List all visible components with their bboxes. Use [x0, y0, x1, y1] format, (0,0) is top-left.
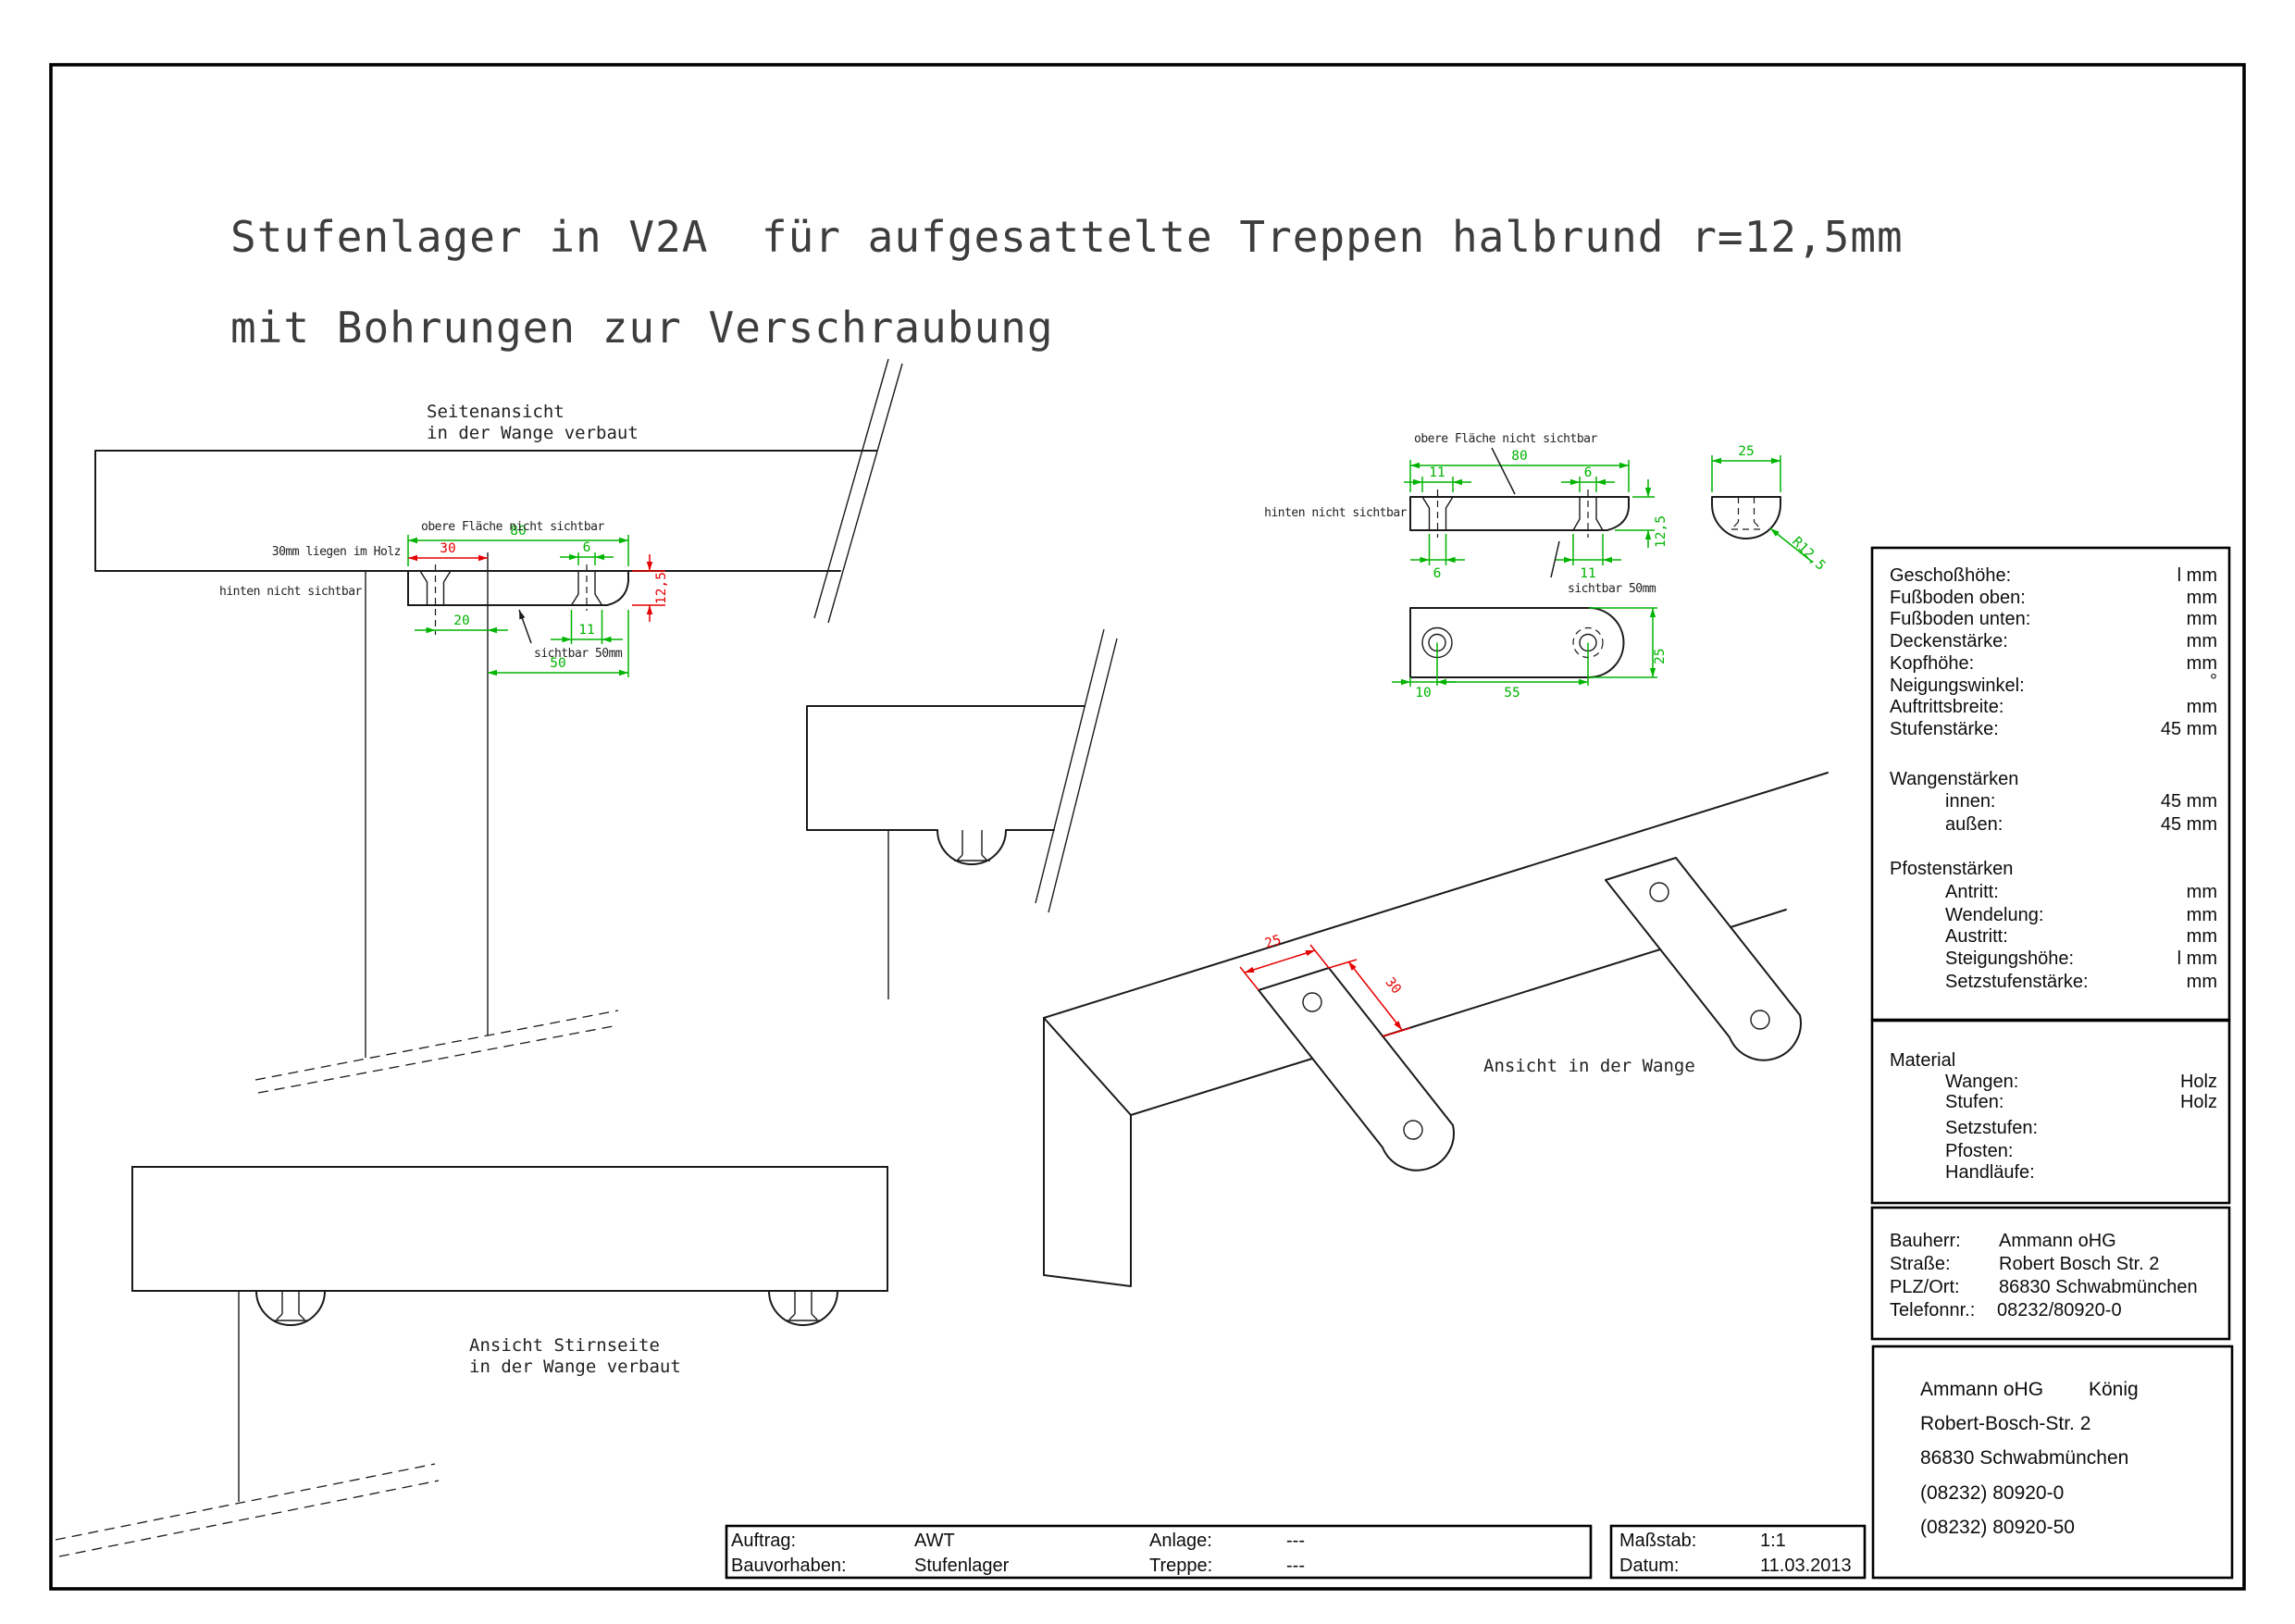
cad-canvas: Stufenlager in V2A für aufgesattelte Tre… [0, 0, 2295, 1624]
spec-panel: Geschoßhöhe:l mm Fußboden oben:mm Fußbod… [1872, 548, 2229, 1020]
spec-value: l mm [2177, 948, 2217, 969]
screw-profile-right [787, 1291, 820, 1320]
spec-label: Auftrittsbreite: [1890, 697, 2003, 717]
plate-end-outline [1712, 497, 1780, 539]
drawing-title-line1: Stufenlager in V2A für aufgesattelte Tre… [230, 212, 1904, 262]
bracket-2-hole-1 [1650, 883, 1669, 901]
bauherr-value: Robert Bosch Str. 2 [1999, 1254, 2159, 1274]
bracket-1-hole-2 [1404, 1121, 1422, 1139]
iso-dim-30: 30 [1329, 960, 1410, 1036]
spec-value: 45 mm [2161, 791, 2217, 812]
spec-value: mm [2187, 697, 2217, 717]
massstab-value: 1:1 [1760, 1531, 1786, 1551]
middle-section-view [807, 629, 1117, 999]
drawing-sheet: Stufenlager in V2A für aufgesattelte Tre… [0, 0, 2295, 1624]
dim-label-6: 6 [583, 540, 591, 555]
dim-12-5: 12,5 [632, 554, 669, 622]
dim-label-11-bottom: 11 [1580, 566, 1595, 581]
spec-value: mm [2187, 609, 2217, 629]
bauherr-label: Bauherr: [1890, 1231, 1961, 1251]
dim-label-20: 20 [453, 614, 469, 628]
board-left-end [1044, 1018, 1131, 1286]
break-lines-bottom [255, 1010, 618, 1093]
company-street: Robert-Bosch-Str. 2 [1920, 1413, 2090, 1434]
drawing-title-line2: mit Bohrungen zur Verschraubung [230, 303, 1054, 353]
spec-label: innen: [1945, 791, 1996, 812]
dim-11: 11 [551, 610, 623, 644]
note-sichtbar-50mm: sichtbar 50mm [1568, 582, 1656, 596]
auftrag-label: Auftrag: [731, 1531, 796, 1551]
pfosten-header: Pfostenstärken [1890, 859, 2013, 879]
spec-label: Deckenstärke: [1890, 631, 2008, 651]
bauvorhaben-label: Bauvorhaben: [731, 1556, 847, 1576]
screw-profile-left [274, 1291, 307, 1320]
step-front-outline [132, 1167, 887, 1291]
massstab-label: Maßstab: [1619, 1531, 1696, 1551]
spec-label: Geschoßhöhe: [1890, 565, 2011, 586]
material-value: Holz [2180, 1092, 2217, 1112]
bracket-1-hole-1 [1303, 993, 1321, 1011]
dim-label-6-top: 6 [1584, 465, 1593, 480]
dim-11-top: 11 [1404, 465, 1471, 492]
board-front-edge [1131, 910, 1786, 1115]
spec-value: mm [2187, 905, 2217, 925]
spec-label: Neigungswinkel: [1890, 676, 2025, 696]
side-view: 80 30 6 12,5 20 11 [95, 359, 902, 1093]
spec-value: mm [2187, 631, 2217, 651]
radius-callout: R12,5 [1770, 528, 1828, 574]
anlage-label: Anlage: [1149, 1531, 1212, 1551]
material-label: Stufen: [1945, 1092, 2003, 1112]
countersink-notches [1422, 497, 1603, 530]
wangen-header: Wangenstärken [1890, 769, 2018, 789]
wange-board-outline [95, 451, 876, 571]
detail-views: 80 11 6 12,5 6 [1264, 432, 1828, 700]
dim-50: 50 [488, 610, 628, 677]
plate-plan-outline [1410, 608, 1624, 677]
company-city: 86830 Schwabmünchen [1920, 1447, 2128, 1469]
break-lines-top [814, 359, 902, 623]
iso-dim-label-25: 25 [1263, 933, 1283, 952]
spec-label: Stufenstärke: [1890, 719, 1999, 739]
dim-label-25-plan: 25 [1653, 649, 1668, 664]
material-panel: Material Wangen:Holz Stufen:Holz Setzstu… [1872, 1021, 2229, 1203]
dim-label-6-bottom: 6 [1433, 566, 1442, 581]
spec-label: Antritt: [1945, 882, 1999, 902]
front-view-title-2: in der Wange verbaut [469, 1357, 681, 1377]
dim-25-end: 25 [1712, 444, 1780, 492]
spec-label: Steigungshöhe: [1945, 948, 2074, 969]
spec-value: mm [2187, 926, 2217, 947]
dim-label-80: 80 [1511, 449, 1527, 464]
spec-label: Setzstufenstärke: [1945, 972, 2089, 992]
step-section-outline [807, 706, 1085, 830]
dim-20: 20 [415, 614, 508, 630]
bracket-1-outline [1259, 968, 1454, 1171]
datum-label: Datum: [1619, 1556, 1679, 1576]
note-sichtbar-50mm: sichtbar 50mm [534, 647, 623, 661]
countersink-notches [420, 571, 602, 605]
bearing-end-arcs [256, 1291, 837, 1325]
company-phone-2: (08232) 80920-50 [1920, 1517, 2075, 1538]
footer-table: Auftrag: AWT Anlage: --- Bauvorhaben: St… [726, 1526, 1865, 1578]
bearing-end-arc [937, 830, 1006, 864]
dim-30: 30 [408, 541, 488, 558]
spec-value: mm [2187, 588, 2217, 608]
iso-dim-label-30: 30 [1382, 975, 1403, 998]
side-view-title-1: Seitenansicht [427, 402, 564, 422]
dim-6: 6 [560, 540, 614, 565]
bauherr-label: Straße: [1890, 1254, 1951, 1274]
spec-label: Austritt: [1945, 926, 2008, 947]
note-30mm-holz: 30mm liegen im Holz [272, 545, 401, 559]
dim-label-25-end: 25 [1738, 444, 1754, 459]
spec-value: 45 mm [2161, 814, 2217, 835]
bauvorhaben-value: Stufenlager [914, 1556, 1010, 1576]
treppe-value: --- [1286, 1556, 1305, 1576]
break-lines [56, 1464, 439, 1556]
dim-11-bottom: 11 [1555, 534, 1621, 581]
anlage-value: --- [1286, 1531, 1305, 1551]
iso-view-title: Ansicht in der Wange [1483, 1056, 1695, 1076]
spec-label: Fußboden oben: [1890, 588, 2026, 608]
material-header: Material [1890, 1050, 1955, 1071]
dim-label-30: 30 [440, 541, 455, 556]
company-name: Ammann oHG [1920, 1379, 2043, 1400]
note-obere-flaeche: obere Fläche nicht sichtbar [421, 520, 604, 534]
datum-value: 11.03.2013 [1760, 1556, 1852, 1576]
dim-12-5: 12,5 [1615, 479, 1669, 548]
dim-label-11-top: 11 [1429, 465, 1445, 480]
dim-25-plan: 25 [1589, 608, 1668, 677]
note-hinten: hinten nicht sichtbar [1264, 506, 1408, 520]
dim-label-10: 10 [1415, 686, 1431, 700]
company-phone-1: (08232) 80920-0 [1920, 1482, 2064, 1504]
bracket-2-hole-2 [1751, 1010, 1769, 1029]
dim-6-bottom: 6 [1410, 534, 1465, 581]
spec-label: Wendelung: [1945, 905, 2043, 925]
spec-value: mm [2187, 972, 2217, 992]
spec-value: ° [2210, 671, 2217, 691]
dim-label-55: 55 [1504, 686, 1520, 700]
treppe-label: Treppe: [1149, 1556, 1212, 1576]
note-obere-flaeche: obere Fläche nicht sichtbar [1414, 432, 1597, 446]
leader-arrow-sichtbar [519, 610, 531, 643]
title-block: Stufenlager in V2A für aufgesattelte Tre… [230, 212, 1904, 353]
bracket-2-outline [1606, 858, 1801, 1060]
spec-label: außen: [1945, 814, 2003, 835]
bauherr-value: 08232/80920-0 [1997, 1300, 2122, 1320]
bauherr-label: Telefonnr.: [1890, 1300, 1975, 1320]
material-label: Wangen: [1945, 1072, 2018, 1092]
bauherr-value: Ammann oHG [1999, 1231, 2116, 1251]
auftrag-value: AWT [914, 1531, 955, 1551]
bauherr-value: 86830 Schwabmünchen [1999, 1277, 2198, 1297]
spec-value: 45 mm [2161, 719, 2217, 739]
spec-label: Fußboden unten: [1890, 609, 2030, 629]
dim-label-12-5: 12,5 [1654, 515, 1669, 548]
front-view-title-1: Ansicht Stirnseite [469, 1335, 660, 1356]
note-hinten: hinten nicht sichtbar [219, 585, 363, 599]
material-label: Setzstufen: [1945, 1118, 2038, 1138]
stringer-break-lines [1036, 629, 1117, 912]
dim-label-11: 11 [578, 623, 594, 638]
material-box [1872, 1021, 2229, 1203]
spec-label: Kopfhöhe: [1890, 653, 1974, 674]
bauherr-label: PLZ/Ort: [1890, 1277, 1960, 1297]
front-view: Ansicht Stirnseite in der Wange verbaut [56, 1167, 887, 1556]
material-value: Holz [2180, 1072, 2217, 1092]
dim-10-55: 10 55 [1392, 643, 1588, 701]
hidden-screw [1731, 497, 1761, 529]
page-border [51, 65, 2244, 1589]
dim-6-top: 6 [1561, 465, 1615, 492]
spec-value: l mm [2177, 565, 2217, 586]
company-contact: König [2089, 1379, 2139, 1400]
radius-label: R12,5 [1789, 535, 1828, 574]
board-back-edge [1044, 773, 1828, 1018]
bauherr-panel: Bauherr:Ammann oHG Straße:Robert Bosch S… [1872, 1208, 2229, 1339]
screw-profile [954, 830, 990, 861]
side-view-title-2: in der Wange verbaut [427, 423, 639, 443]
material-label: Pfosten: [1945, 1141, 2013, 1161]
spec-value: mm [2187, 882, 2217, 902]
dim-label-12-5: 12,5 [654, 572, 669, 604]
company-panel: Ammann oHG König Robert-Bosch-Str. 2 868… [1873, 1346, 2232, 1578]
iso-view: 25 30 Ansicht in der Wange [1044, 773, 1828, 1286]
material-label: Handläufe: [1945, 1162, 2035, 1183]
